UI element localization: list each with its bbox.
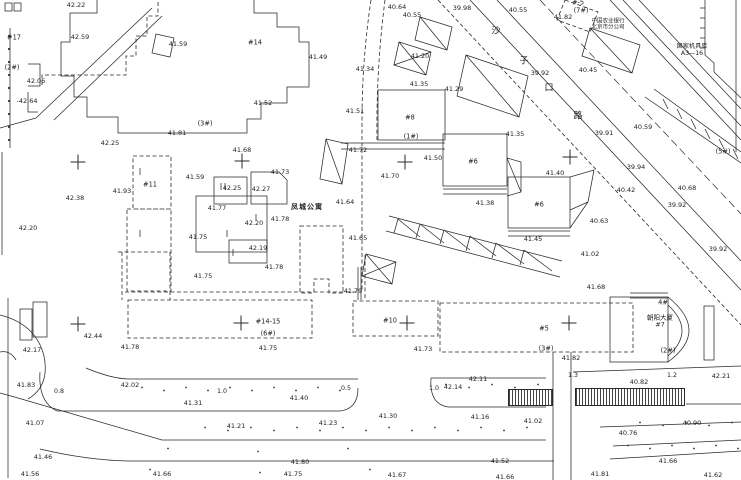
elevation-label: 42.17 (23, 347, 42, 354)
elevation-label: 41.70 (381, 173, 400, 180)
street-name-char: 子 (519, 54, 528, 67)
distance-label: 1.3 (568, 373, 578, 379)
elevation-label: 41.62 (704, 472, 723, 479)
building-number-label: #14-15 (256, 319, 281, 326)
elevation-label: 41.64 (336, 199, 355, 206)
elevation-label: 41.30 (379, 413, 398, 420)
elevation-label: 42.59 (71, 34, 90, 41)
elevation-label: 41.66 (153, 471, 172, 478)
elevation-label: 41.31 (184, 400, 203, 407)
elevation-label: 41.78 (121, 344, 140, 351)
elevation-label: 40.59 (634, 124, 653, 131)
grid-cross (563, 150, 578, 165)
elevation-label: 41.78 (265, 264, 284, 271)
depot-name-label: 国家机具库 A3—16 (677, 43, 708, 57)
distance-label: 0.8 (54, 389, 64, 395)
building-number-label: (1#) (404, 134, 419, 141)
elevation-label: 41.59 (186, 174, 205, 181)
street-name-char: 口 (544, 81, 553, 94)
elevation-label: 41.02 (524, 418, 543, 425)
elevation-label: 42.02 (121, 382, 140, 389)
elevation-label: 39.94 (627, 164, 646, 171)
elevation-label: 41.66 (496, 474, 515, 480)
street-name-char: 路 (573, 109, 582, 122)
building-number-label: (5#) (716, 149, 731, 156)
elevation-label: 41.75 (284, 471, 303, 478)
grid-cross (235, 154, 250, 169)
elevation-label: 40.55 (509, 7, 528, 14)
distance-label: 0.5 (341, 386, 351, 392)
elevation-label: 42.27 (252, 186, 271, 193)
elevation-label: 41.29 (445, 86, 464, 93)
elevation-label: 42.20 (19, 225, 38, 232)
elevation-label: 41.07 (26, 420, 45, 427)
elevation-label: 41.56 (21, 471, 40, 478)
elevation-label: 41.81 (168, 130, 187, 137)
elevation-label: 41.38 (476, 200, 495, 207)
elevation-label: 41.66 (659, 458, 678, 465)
elevation-label: 41.35 (410, 81, 429, 88)
grid-cross (562, 316, 577, 331)
building-number-label: #17 (7, 35, 21, 42)
depot-line1: 国家机具库 (677, 43, 708, 50)
elevation-label: 40.45 (579, 67, 598, 74)
elevation-label: 40.68 (678, 185, 697, 192)
distance-label: 1.0 (217, 389, 227, 395)
elevation-label: 41.34 (356, 66, 375, 73)
elevation-label: 41.73 (271, 169, 290, 176)
elevation-label: 41.75 (194, 273, 213, 280)
elevation-label: 41.52 (491, 458, 510, 465)
elevation-label: 41.77 (208, 205, 227, 212)
elevation-label: 41.51 (346, 108, 365, 115)
elevation-label: 39.92 (709, 246, 728, 253)
elevation-label: -42.64 (17, 98, 38, 105)
elevation-label: 41.72 (349, 147, 368, 154)
building-number-label: (2#) (5, 65, 20, 72)
elevation-label: 40.42 (617, 187, 636, 194)
tower-number: #7 (647, 322, 673, 329)
elevation-label: 41.23 (319, 420, 338, 427)
elevation-label: 39.92 (668, 202, 687, 209)
elevation-label: 41.35 (506, 131, 525, 138)
survey-map: 凤城公寓 朝阳大厦 #7 中国农业银行 北京市分公司 国家机具库 A3—16 4… (0, 0, 741, 480)
elevation-label: 41.20 (411, 53, 430, 60)
elevation-label: 41.49 (309, 54, 328, 61)
apartment-name-label: 凤城公寓 (291, 203, 323, 211)
elevation-label: 41.78 (271, 216, 290, 223)
elevation-label: 42.14 (444, 384, 463, 391)
elevation-label: 40.82 (630, 379, 649, 386)
building-number-label: #6 (468, 159, 478, 166)
building-number-label: (7#) (574, 8, 589, 15)
labels-layer: 凤城公寓 朝阳大厦 #7 中国农业银行 北京市分公司 国家机具库 A3—16 4… (0, 0, 741, 480)
elevation-label: 41.59 (169, 41, 188, 48)
building-number-label: #6 (534, 202, 544, 209)
elevation-label: 41.81 (591, 471, 610, 478)
elevation-label: 41.75 (259, 345, 278, 352)
elevation-label: 41.82 (562, 355, 581, 362)
elevation-label: 42.20 (245, 220, 264, 227)
elevation-label: 40.55 (403, 12, 422, 19)
distance-label: 1.2 (667, 373, 677, 379)
tower-name-label: 朝阳大厦 #7 (647, 315, 673, 330)
elevation-label: 41.83 (17, 382, 36, 389)
street-name-char: 沙 (491, 24, 500, 37)
elevation-label: 41.21 (227, 423, 246, 430)
grid-cross (71, 155, 86, 170)
building-number-label: 4# (658, 300, 668, 307)
building-number-label: (2#) (661, 348, 676, 355)
building-number-label: (3#) (539, 346, 554, 353)
grid-cross (400, 316, 415, 331)
elevation-label: 40.64 (388, 4, 407, 11)
elevation-label: 41.16 (471, 414, 490, 421)
grid-cross (398, 155, 413, 170)
elevation-label: 41.40 (290, 395, 309, 402)
elevation-label: 41.02 (581, 251, 600, 258)
elevation-label: 42.25 (101, 140, 120, 147)
elevation-label: 40.90 (683, 420, 702, 427)
elevation-label: 42.38 (66, 195, 85, 202)
building-number-label: #-5 (572, 0, 584, 6)
elevation-label: 39.92 (531, 70, 550, 77)
elevation-label: 42.22 (67, 2, 86, 9)
elevation-label: 41.50 (424, 155, 443, 162)
elevation-label: 41.82 (554, 14, 573, 21)
elevation-label: 41.68 (587, 284, 606, 291)
elevation-label: 42.21 (712, 373, 731, 380)
building-number-label: #14 (248, 40, 262, 47)
elevation-label: 42.25 (223, 185, 242, 192)
elevation-label: 41.75 (189, 234, 208, 241)
building-number-label: (3#) (198, 121, 213, 128)
agency-line2: 北京市分公司 (591, 25, 624, 31)
depot-line2: A3—16 (677, 50, 708, 57)
elevation-label: 41.73 (414, 346, 433, 353)
elevation-label: 40.63 (590, 218, 609, 225)
elevation-label: 41.79 (344, 288, 363, 295)
distance-label: 1.0 (429, 386, 439, 392)
elevation-label: 41.40 (546, 170, 565, 177)
building-number-label: #11 (143, 182, 157, 189)
grid-cross (234, 316, 249, 331)
elevation-label: 41.68 (233, 147, 252, 154)
elevation-label: 41.65 (349, 235, 368, 242)
elevation-label: 41.45 (524, 236, 543, 243)
elevation-label: 40.76 (619, 430, 638, 437)
elevation-label: 42.19 (249, 245, 268, 252)
elevation-label: 42.06 (27, 78, 46, 85)
elevation-label: 42.44 (84, 333, 103, 340)
elevation-label: 41.52 (254, 100, 273, 107)
agency-name-label: 中国农业银行 北京市分公司 (591, 19, 624, 32)
building-number-label: #10 (383, 318, 397, 325)
elevation-label: 41.46 (34, 454, 53, 461)
elevation-label: 39.91 (595, 130, 614, 137)
elevation-label: 39.98 (453, 5, 472, 12)
building-number-label: #8 (405, 115, 415, 122)
building-number-label: (6#) (261, 331, 276, 338)
elevation-label: 41.67 (388, 472, 407, 479)
elevation-label: 41.80 (291, 459, 310, 466)
grid-cross (71, 317, 86, 332)
building-number-label: #5 (539, 326, 549, 333)
elevation-label: 41.93 (113, 188, 132, 195)
elevation-label: 42.11 (469, 376, 488, 383)
